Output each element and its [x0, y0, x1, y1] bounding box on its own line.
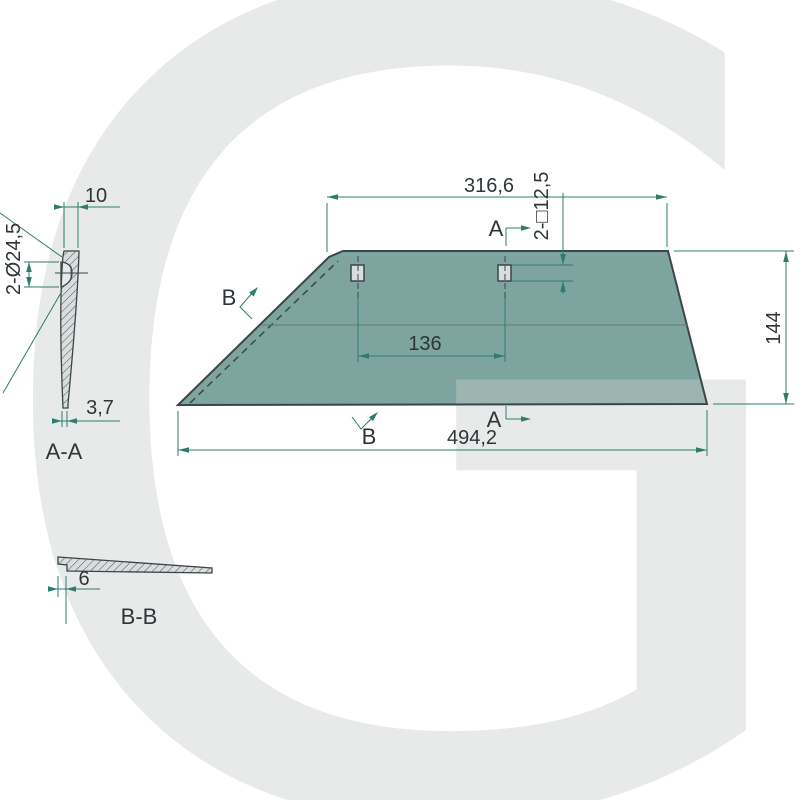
cut-b-bottom-text: B — [362, 424, 377, 449]
dim-hole-spacing-text: 136 — [408, 333, 441, 355]
dim-width-bottom: 494,2 — [178, 410, 707, 456]
section-bb-label: B-B — [121, 604, 158, 629]
dim-edge-offset: 6 — [48, 568, 100, 624]
dim-square-holes-text: 2-□12,5 — [531, 172, 553, 241]
dim-thickness-top-text: 10 — [85, 185, 107, 207]
dim-countersink: 2-Ø24,5 — [0, 213, 62, 393]
dim-square-holes: 2-□12,5 — [512, 172, 573, 294]
linework-layer: 316,6 2-□12,5 144 — [0, 0, 800, 800]
bevel-dashed-line — [190, 261, 338, 403]
dim-width-top-text: 316,6 — [464, 175, 514, 197]
dim-hole-spacing: 136 — [358, 298, 505, 362]
main-view: 316,6 2-□12,5 144 — [178, 172, 794, 456]
cut-a-bottom-text: A — [487, 407, 502, 432]
technical-drawing-canvas: G 3 — [0, 0, 800, 800]
cut-marker-b-bottom: B — [352, 412, 378, 449]
section-aa-profile — [61, 251, 79, 408]
cut-marker-a-bottom: A — [487, 406, 531, 432]
blade-outline — [178, 251, 707, 405]
dim-height-right-text: 144 — [763, 311, 785, 344]
dim-countersink-text: 2-Ø24,5 — [3, 223, 25, 295]
dim-edge-offset-text: 6 — [78, 568, 89, 590]
dim-thickness-top: 10 — [54, 185, 120, 248]
section-aa-label: A-A — [46, 439, 83, 464]
cut-b-top-text: B — [222, 285, 237, 310]
dim-height-right: 144 — [674, 251, 794, 404]
section-a-view: 10 2-Ø24,5 3,7 A-A — [0, 185, 120, 464]
cut-a-top-text: A — [489, 216, 504, 241]
dim-thickness-tip-text: 3,7 — [86, 397, 114, 419]
section-b-view: 6 B-B — [48, 557, 212, 629]
cut-marker-b-top: B — [222, 285, 258, 319]
cut-marker-a-top: A — [489, 216, 531, 246]
